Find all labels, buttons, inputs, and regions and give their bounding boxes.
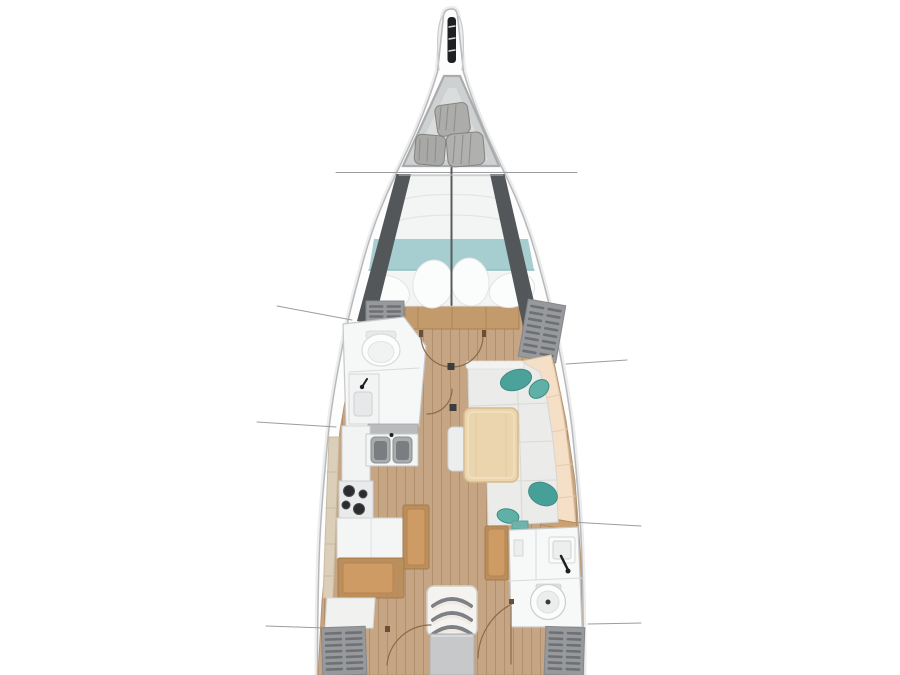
galley-faucet — [390, 433, 394, 437]
tread-plate-fwd-port-bar — [369, 305, 384, 308]
section-callout-lines-segment — [257, 422, 336, 427]
tread-plate-aft-starboard-bar — [566, 656, 581, 659]
aft-head-towel — [512, 521, 528, 529]
nav-bench-cushion — [488, 529, 505, 576]
tread-plate-fwd-port-bar — [369, 315, 384, 318]
door-hinge-posts-item — [419, 330, 423, 337]
port-aft-berth-panel — [325, 598, 375, 628]
stove-burner-1 — [344, 486, 355, 497]
floor-door-latches-item — [448, 363, 455, 370]
tread-plate-aft-starboard-bar — [548, 643, 563, 646]
galley-sink-right-bowl — [396, 441, 409, 460]
tread-plate-fwd-port-bar — [387, 305, 402, 308]
door-hinge-posts-item — [385, 626, 390, 632]
tread-plate-aft-starboard-bar — [566, 638, 581, 641]
door-hinge-posts-item — [482, 330, 486, 337]
aft-head-toilet-drain — [546, 600, 551, 605]
sofa-armrest — [466, 361, 524, 369]
tread-plate-aft-starboard-bar — [548, 655, 563, 658]
floor-door-latches-item — [450, 404, 457, 411]
tread-plate-aft-starboard-bar — [567, 632, 582, 635]
anchor-roller-slits-segment — [449, 50, 455, 51]
salon-table — [464, 408, 518, 482]
tread-plate-aft-starboard-bar — [548, 661, 563, 664]
yacht-floorplan-stage — [0, 0, 900, 675]
stove-burner-3 — [342, 501, 350, 509]
stove-burner-2 — [359, 490, 367, 498]
corridor-bench-cushion — [407, 509, 425, 565]
galley-sink-left-bowl — [374, 441, 387, 460]
tread-plate-fwd-port-bar — [369, 310, 384, 313]
anchor-roller — [448, 17, 457, 63]
anchor-roller-slits-segment — [449, 26, 455, 27]
aft-head-faucet-base — [566, 569, 571, 574]
section-callout-lines-segment — [588, 623, 641, 624]
forward-head-sink — [354, 392, 372, 416]
forward-head-toilet-bowl — [368, 342, 394, 363]
tread-plate-aft-starboard-bar — [547, 667, 562, 670]
galley-counter-aft — [337, 518, 403, 558]
anchor-roller-slits-segment — [449, 38, 455, 39]
yacht-floorplan-svg — [0, 0, 900, 675]
tread-plate-aft-starboard-bar — [566, 644, 581, 647]
tread-plate-aft-starboard-bar — [566, 650, 581, 653]
tread-plate-aft-starboard-bar — [565, 668, 580, 671]
engine-box-slab — [430, 634, 474, 675]
port-aft-bench-cushion — [343, 563, 393, 593]
galley-shelf — [368, 424, 418, 434]
stove-burner-4 — [354, 504, 365, 515]
tread-plate-aft-starboard-bar — [549, 631, 564, 634]
tread-plate-aft-port — [321, 626, 367, 675]
sail-roll-right — [446, 131, 486, 167]
tread-plate-aft-starboard-bar — [548, 637, 563, 640]
tread-plate-fwd-port-bar — [387, 310, 402, 313]
door-hinge-posts-item — [509, 599, 514, 604]
section-callout-lines-segment — [566, 360, 627, 364]
tread-plate-aft-starboard-bar — [548, 649, 563, 652]
aft-head-vent — [514, 540, 523, 556]
tread-plate-aft-starboard — [544, 626, 585, 675]
tread-plate-aft-starboard-bar — [566, 662, 581, 665]
section-callout-lines-segment — [277, 306, 352, 320]
sail-roll-left — [414, 134, 447, 167]
